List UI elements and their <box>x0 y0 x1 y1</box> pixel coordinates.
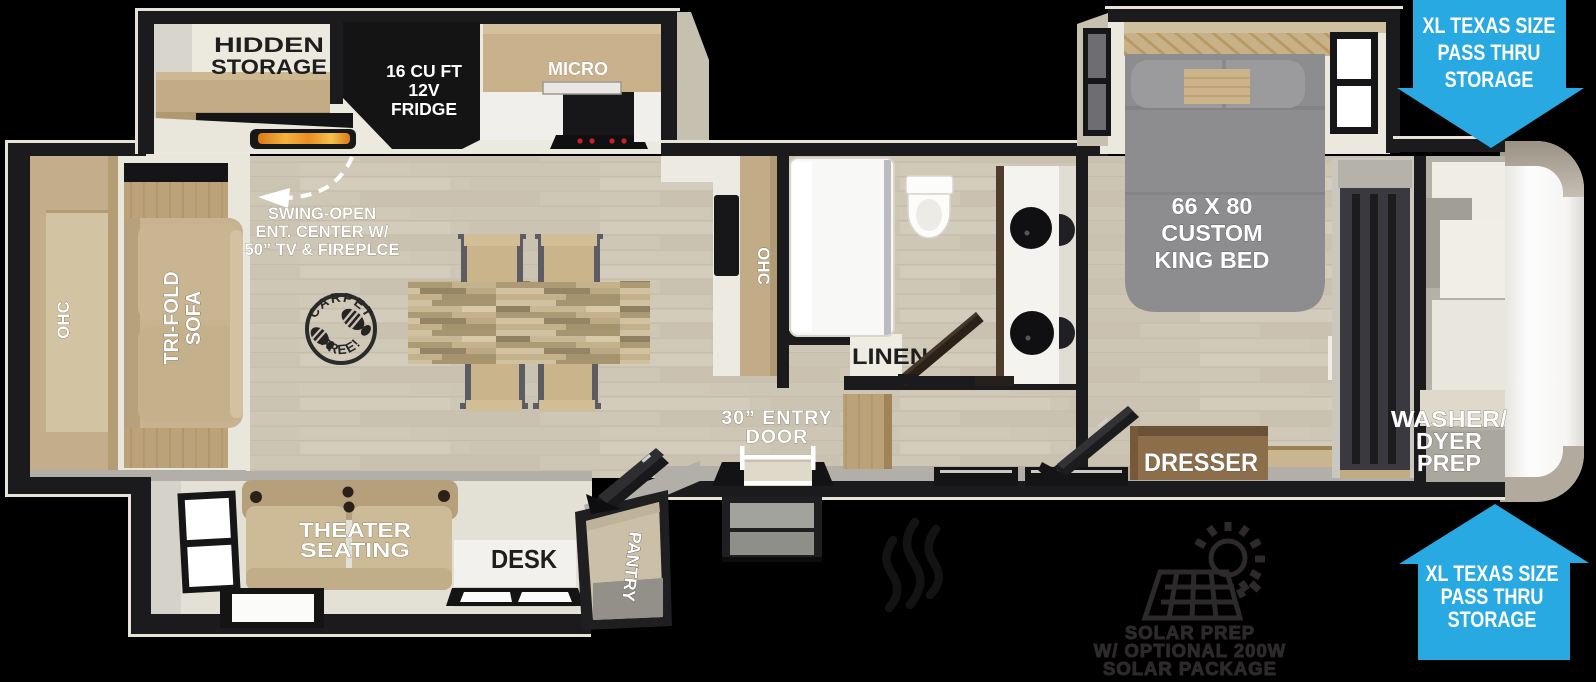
svg-text:SEATING: SEATING <box>300 540 410 562</box>
svg-text:FRIDGE: FRIDGE <box>391 99 457 119</box>
svg-text:STORAGE: STORAGE <box>1448 608 1537 632</box>
svg-text:66 X 80: 66 X 80 <box>1171 193 1252 219</box>
svg-text:OHC: OHC <box>54 301 73 339</box>
svg-text:16 CU FT: 16 CU FT <box>386 61 462 81</box>
svg-text:CUSTOM: CUSTOM <box>1161 220 1262 246</box>
svg-text:SOLAR PACKAGE: SOLAR PACKAGE <box>1103 658 1277 679</box>
svg-text:PREP: PREP <box>1417 450 1481 476</box>
svg-text:DOOR: DOOR <box>746 426 809 448</box>
svg-text:TRI-FOLD: TRI-FOLD <box>161 271 183 364</box>
svg-text:HIDDEN: HIDDEN <box>214 34 324 57</box>
svg-text:DRESSER: DRESSER <box>1144 449 1258 477</box>
svg-text:XL TEXAS SIZE: XL TEXAS SIZE <box>1423 14 1556 38</box>
svg-text:STORAGE: STORAGE <box>211 56 327 79</box>
svg-text:SOFA: SOFA <box>183 291 205 345</box>
svg-text:OHC: OHC <box>754 247 773 285</box>
svg-text:SWING-OPEN: SWING-OPEN <box>268 205 376 223</box>
svg-text:XL TEXAS SIZE: XL TEXAS SIZE <box>1426 562 1559 586</box>
svg-text:KING BED: KING BED <box>1155 247 1270 273</box>
svg-text:THEATER: THEATER <box>299 520 412 542</box>
svg-text:12V: 12V <box>408 80 439 100</box>
svg-text:ENT. CENTER W/: ENT. CENTER W/ <box>256 223 389 241</box>
svg-text:DESK: DESK <box>491 544 557 574</box>
svg-text:50” TV & FIREPLCE: 50” TV & FIREPLCE <box>245 241 400 259</box>
svg-text:MICRO: MICRO <box>548 59 608 79</box>
svg-text:PASS THRU: PASS THRU <box>1438 41 1541 65</box>
svg-text:PASS THRU: PASS THRU <box>1441 585 1544 609</box>
svg-text:STORAGE: STORAGE <box>1445 68 1534 92</box>
